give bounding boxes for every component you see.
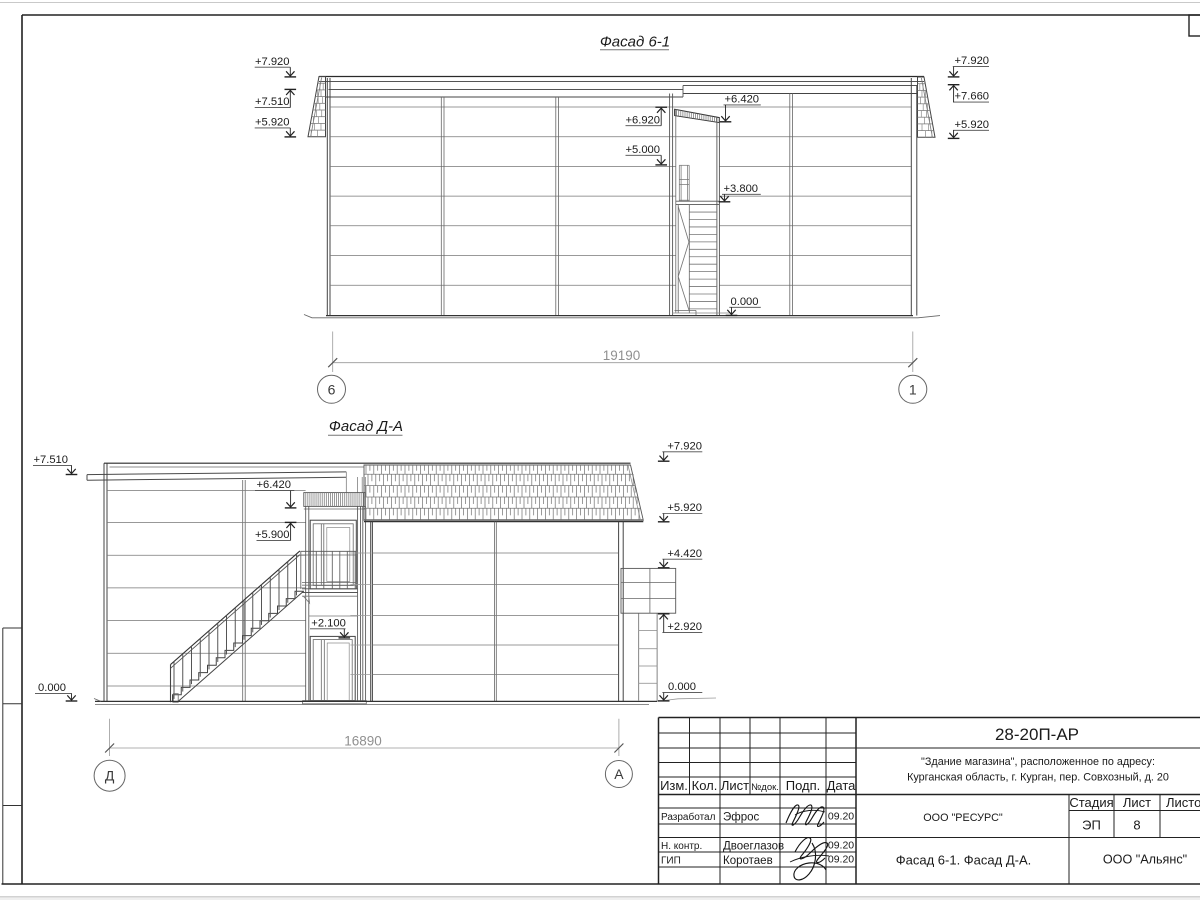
svg-text:Лист: Лист bbox=[1123, 795, 1151, 810]
svg-text:Стадия: Стадия bbox=[1069, 795, 1113, 810]
svg-text:8: 8 bbox=[1133, 818, 1140, 833]
svg-text:Листов: Листов bbox=[1166, 795, 1200, 810]
svg-text:Фасад Д-А: Фасад Д-А bbox=[329, 418, 403, 435]
svg-text:Фасад 6-1: Фасад 6-1 bbox=[600, 34, 670, 51]
svg-text:0.000: 0.000 bbox=[731, 296, 759, 308]
svg-text:Подп.: Подп. bbox=[786, 778, 821, 793]
svg-text:+5.000: +5.000 bbox=[625, 144, 660, 156]
svg-text:1: 1 bbox=[909, 381, 917, 397]
svg-text:0.000: 0.000 bbox=[38, 682, 66, 694]
svg-text:6: 6 bbox=[328, 381, 336, 397]
svg-text:ГИП: ГИП bbox=[661, 856, 681, 867]
svg-text:+7.920: +7.920 bbox=[955, 55, 990, 67]
svg-text:+7.510: +7.510 bbox=[255, 96, 290, 108]
svg-text:+5.920: +5.920 bbox=[955, 119, 990, 131]
svg-text:0.000: 0.000 bbox=[668, 681, 696, 693]
svg-text:№док.: №док. bbox=[751, 782, 779, 793]
svg-text:+2.100: +2.100 bbox=[311, 617, 346, 629]
svg-text:+2.920: +2.920 bbox=[667, 621, 702, 633]
svg-text:Фасад 6-1. Фасад Д-А.: Фасад 6-1. Фасад Д-А. bbox=[896, 853, 1032, 868]
svg-text:+6.420: +6.420 bbox=[256, 479, 291, 491]
svg-text:+4.420: +4.420 bbox=[667, 548, 702, 560]
svg-text:28-20П-АР: 28-20П-АР bbox=[995, 725, 1079, 744]
svg-text:Эфрос: Эфрос bbox=[723, 812, 760, 824]
svg-text:09.20: 09.20 bbox=[828, 811, 854, 823]
svg-text:Изм.: Изм. bbox=[660, 778, 688, 793]
svg-text:+5.900: +5.900 bbox=[255, 529, 290, 541]
svg-text:+5.920: +5.920 bbox=[255, 117, 290, 129]
svg-text:Курганская область, г. Курган,: Курганская область, г. Курган, пер. Совх… bbox=[907, 772, 1169, 784]
svg-text:16890: 16890 bbox=[344, 734, 382, 749]
svg-text:Коротаев: Коротаев bbox=[723, 855, 773, 867]
svg-text:ООО "Альянс": ООО "Альянс" bbox=[1103, 853, 1187, 867]
svg-text:+7.920: +7.920 bbox=[255, 56, 290, 68]
svg-text:+5.920: +5.920 bbox=[667, 502, 702, 514]
svg-text:+7.660: +7.660 bbox=[955, 91, 990, 103]
svg-text:ООО "РЕСУРС": ООО "РЕСУРС" bbox=[923, 812, 1003, 824]
svg-text:Дата: Дата bbox=[827, 778, 857, 793]
svg-text:+7.510: +7.510 bbox=[33, 454, 68, 466]
svg-text:Лист: Лист bbox=[721, 778, 749, 793]
svg-text:+3.800: +3.800 bbox=[724, 183, 759, 195]
svg-text:09.20: 09.20 bbox=[828, 854, 854, 866]
svg-text:Кол.: Кол. bbox=[692, 778, 718, 793]
svg-text:+6.420: +6.420 bbox=[725, 94, 760, 106]
svg-text:19190: 19190 bbox=[603, 348, 641, 363]
svg-text:ЭП: ЭП bbox=[1082, 818, 1101, 833]
svg-text:Н. контр.: Н. контр. bbox=[661, 841, 702, 852]
svg-text:+6.920: +6.920 bbox=[625, 114, 660, 126]
svg-text:Д: Д bbox=[105, 768, 115, 784]
svg-text:Разработал: Разработал bbox=[661, 811, 716, 823]
svg-text:Двоеглазов: Двоеглазов bbox=[723, 841, 784, 853]
svg-text:09.20: 09.20 bbox=[828, 840, 854, 852]
svg-text:"Здание магазина", расположенн: "Здание магазина", расположенное по адре… bbox=[921, 756, 1155, 768]
svg-text:А: А bbox=[614, 766, 624, 782]
svg-text:+7.920: +7.920 bbox=[667, 440, 702, 452]
